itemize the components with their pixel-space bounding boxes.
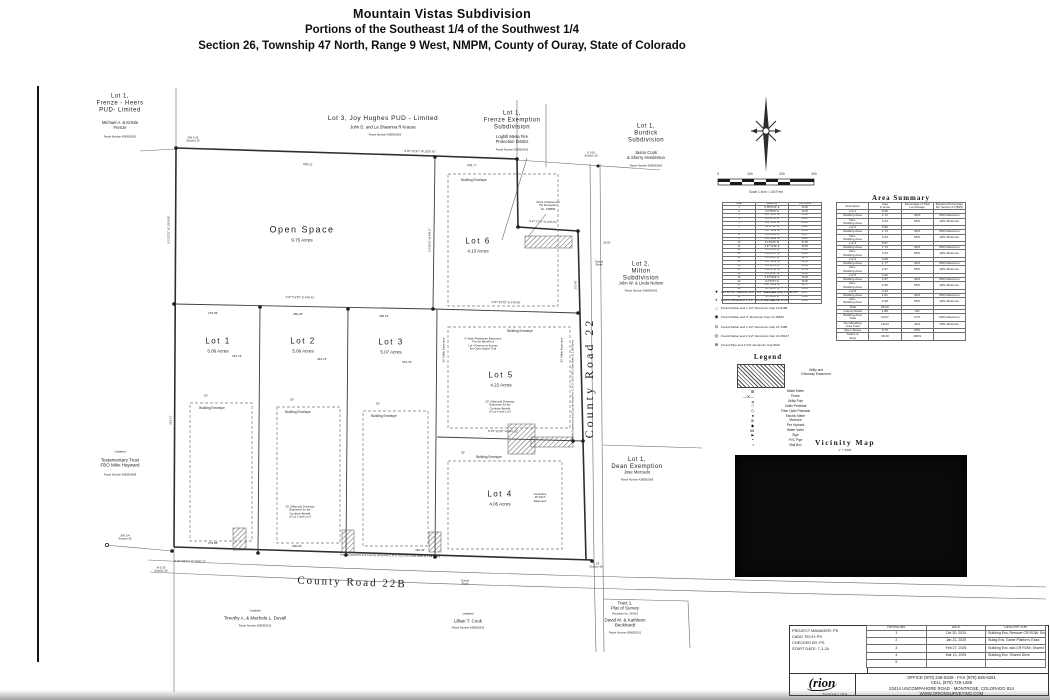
label-distance: 343.76' xyxy=(402,361,412,365)
table-row: Non- Building Area2.2856%40% Minimum xyxy=(837,298,966,305)
label-unplatted: Unplatted xyxy=(114,450,125,453)
table-cell: 3.34 xyxy=(869,234,901,241)
table-cell: 40% Minimum xyxy=(933,266,965,273)
label-lot-5-acres: 4.22 Acres xyxy=(490,382,511,387)
monument-text: Found Rebar and 1 1/2" Aluminum Cap LS 1… xyxy=(721,298,789,302)
table-cell: 60% Maximum xyxy=(933,314,965,321)
table-row: Non-Building Area Total18.6344%40% Minim… xyxy=(837,321,966,328)
legend-label: Fiber Optic Pedestal xyxy=(757,409,834,413)
label-milton: Lot 2, Milton Subdivision xyxy=(623,261,659,282)
table-cell: 44% xyxy=(901,321,933,328)
table-cell: Mar 10, 2025 xyxy=(926,652,986,659)
table-row: 3Feb 27, 2025Building Env. add CR ROW, S… xyxy=(867,645,1046,652)
label-frenze-exemption: Lot 1, Frenze Exemption Subdivision xyxy=(484,110,541,131)
area-summary-table: DescriptionArea in AcresPercentage of To… xyxy=(836,202,966,341)
legend-heading: Legend xyxy=(754,353,782,361)
vicinity-map-heading: Vicinity Map xyxy=(815,438,875,447)
label-driveway-easement: 25' Utility and Driveway Easement for th… xyxy=(286,505,315,518)
table-cell: Oct 30, 2024 xyxy=(926,630,986,637)
label-krause-owner: John D. and La Shawnna R Krause xyxy=(350,126,416,131)
table-cell: 2 xyxy=(867,638,927,645)
table-cell: 3.34 xyxy=(869,218,901,225)
monument-symbol-icon: ⊙ xyxy=(712,324,721,330)
table-cell xyxy=(933,333,965,340)
table-cell: 56% xyxy=(901,298,933,305)
easement-swatch-label: Utility and Driveway Easement xyxy=(788,368,844,376)
table-cell: Building Env. Shared Drive xyxy=(986,652,1046,659)
table-cell: 27% xyxy=(901,314,933,321)
monument-text: Found Rebar and 2 1/2" Aluminum Cap LS 3… xyxy=(721,334,789,338)
label-reception-number: Reception No. 240318 xyxy=(612,612,638,615)
label-parcel-number: Parcel Number 4288363001 xyxy=(104,135,136,138)
label-building-envelope: Building Envelope xyxy=(461,179,487,183)
label-grant-of-easement: Grant of Easement Per Reception No. 1588… xyxy=(536,201,559,211)
scan-shadow xyxy=(0,690,1050,700)
monument-text: Found Rebar and 1 1/2" Aluminum Cap LS 9… xyxy=(721,306,787,310)
table-cell: Building Env. add CR ROW, Shared Drive xyxy=(986,645,1046,652)
table-cell: 40% Minimum xyxy=(933,234,965,241)
table-cell: 40% Minimum xyxy=(933,298,965,305)
label-distance: 343.76' xyxy=(317,358,327,362)
monument-symbol-icon: ● xyxy=(712,289,721,294)
scale-bar xyxy=(718,179,814,185)
label-distance: 343.76' xyxy=(232,355,242,359)
label-loghill-mesa: Loghill Mesa Fire Protection District xyxy=(496,135,529,145)
monument-note: ○Found Rebar and 1 1/2" Aluminum Cap LS … xyxy=(712,306,838,311)
table-row: 5 xyxy=(867,660,1046,667)
table-cell: 66% xyxy=(901,234,933,241)
label-parcel-number: Parcel Number 4288362215 xyxy=(239,624,271,627)
easement-hatch-swatch xyxy=(737,364,785,388)
scale-caption: Scale 1 inch = 100 Feet xyxy=(749,190,783,194)
table-cell: 5 xyxy=(867,660,927,667)
label-lot-3: Lot 3 xyxy=(378,337,403,346)
label-section-corner: S 1/16 Section 26 xyxy=(584,152,597,159)
label-building-envelope: Building Envelope xyxy=(507,330,533,334)
label-frenze-heers: Lot 1, Frenze - Heers PUD- Limited xyxy=(96,93,143,114)
monument-symbol-icon: ◎ xyxy=(712,333,721,339)
label-open-space: Open Space xyxy=(269,225,334,236)
project-info: PROJECT MANAGER: PSCADD TECH: PSCHECKED … xyxy=(792,628,866,651)
legend-label: Electric Meter xyxy=(757,414,834,418)
table-cell: 1 xyxy=(867,630,927,637)
label-distance: 663.17' xyxy=(169,415,172,424)
label-testamentary-trust: Testamentary Trust FBO Mike Hayward xyxy=(100,458,139,469)
monument-symbol-icon: ◐ xyxy=(712,297,721,302)
mail-box-icon: ▪ xyxy=(722,442,757,447)
label-distance: 30.02' xyxy=(603,241,611,244)
label-bearing: N 87°18'41" W 2660.37' xyxy=(174,560,206,564)
label-cook-owner: Lillian T. Cook xyxy=(454,618,482,623)
table-row: Total Lot Area36.00100% xyxy=(837,333,966,340)
label-building-envelope: Building Envelope xyxy=(476,456,502,460)
monument-note: ◎Found Rebar and 2 1/2" Aluminum Cap LS … xyxy=(712,333,838,339)
label-frenze-owner: Michael A. & Kristie Frenze xyxy=(102,121,138,131)
label-distance: 280.20' xyxy=(292,545,302,549)
col-header: Percentage of Total Lot Acreage xyxy=(901,203,933,210)
table-cell: Building Env, Remove CR ROW, Shared Driv… xyxy=(986,630,1046,637)
monument-text: Set 18 No. 5 Rebar and 1 1/2" Aluminum C… xyxy=(721,290,797,294)
legend-label: Cable Pedestal xyxy=(757,404,834,408)
table-row: 1Oct 30, 2024Building Env, Remove CR ROW… xyxy=(867,630,1046,637)
label-county-road-22: County Road 22 xyxy=(582,318,596,439)
label-utility-easement: 20' Utility Easement xyxy=(560,338,563,363)
vicinity-map-scale: 1" = 3000' xyxy=(838,448,851,452)
label-section-corner: SW 1/4 Section 26 xyxy=(118,535,131,542)
table-cell: 2.35 xyxy=(869,282,901,289)
table-cell: Non- Building Area xyxy=(837,250,869,257)
label-distance: 273.45' xyxy=(574,280,577,289)
scale-tick: 300 xyxy=(811,172,817,176)
table-row: 2Jan 21, 2025Buldg Env, Game Platform, E… xyxy=(867,638,1046,645)
label-parcel-number: Parcel Number 4288363002 xyxy=(630,164,662,167)
table-cell: 4 xyxy=(867,652,927,659)
label-lot-1-acres: 5.06 Acres xyxy=(207,348,228,353)
label-pedestrian-easement: 6' Wide Pedestrian Easement For the Bene… xyxy=(465,337,502,350)
table-row: Non- Building Area3.3466%40% Minimum xyxy=(837,234,966,241)
table-cell: 2.27 xyxy=(869,266,901,273)
label-distance: 50' xyxy=(461,451,465,454)
monument-symbol-icon: ◉ xyxy=(712,314,721,320)
table-cell: Total Lot Area xyxy=(837,333,869,340)
table-cell: 36.00 xyxy=(869,333,901,340)
scale-bar-ticks: 0100200300 xyxy=(718,172,818,177)
table-cell: 56% xyxy=(901,266,933,273)
table-cell: 40% Minimum xyxy=(933,218,965,225)
table-cell: Non- Building Area xyxy=(837,298,869,305)
label-gravel-road: Gravel Road xyxy=(461,580,469,587)
label-bearing: S 87°11'33" E 940.45' xyxy=(286,296,315,300)
label-building-envelope: Building Envelope xyxy=(199,407,225,411)
label-beckhardt-owner: David M. & Kathleen Beckhardt xyxy=(604,618,645,629)
label-lot-2-acres: 5.06 Acres xyxy=(292,348,313,353)
scale-tick: 200 xyxy=(779,172,785,176)
label-parcel-number: Parcel Number 4288363003 xyxy=(369,133,401,136)
table-cell: Jan 21, 2025 xyxy=(926,638,986,645)
legend-label: Fire Hydrant xyxy=(757,423,834,427)
scale-tick: 0 xyxy=(717,172,719,176)
monument-text: Found Pipe and 3 1/4" Aluminum Cap BLM xyxy=(721,343,780,347)
col-header: Required Percentage Per Section 6-7(B)(2… xyxy=(933,203,965,210)
monument-symbol-icon: ○ xyxy=(712,306,721,311)
table-row: Non- Building Area2.2756%40% Minimum xyxy=(837,266,966,273)
area-summary-heading: Area Summary xyxy=(872,194,930,202)
label-ditch-easement: Centerline 25' Ditch Easement xyxy=(534,493,547,503)
building-envelopes xyxy=(190,174,570,549)
label-joy-hughes: Lot 3, Joy Hughes PUD - Limited xyxy=(328,115,438,123)
label-distance: 286.12' xyxy=(379,315,389,319)
label-driveway-easement: 25' Utility and Driveway Easement for th… xyxy=(486,400,515,413)
easement-hatching xyxy=(233,236,573,552)
label-distance: 50' xyxy=(204,394,208,397)
table-cell xyxy=(986,660,1046,667)
monument-symbol-icon: ⊛ xyxy=(712,342,721,348)
label-parcel-number: Parcel Number 4288362408 xyxy=(104,473,136,476)
label-section-corner: S 1/4 Section 26 xyxy=(589,563,602,570)
label-distance: 280.26' xyxy=(293,313,303,317)
label-utility-easement: 30' Utility Easement xyxy=(442,338,445,363)
label-distance: 836.11' xyxy=(303,163,313,167)
label-gravel-road: Gravel Road xyxy=(595,261,603,268)
vicinity-map-image xyxy=(735,455,967,577)
label-lot-2: Lot 2 xyxy=(290,336,315,345)
monument-note: ◉Found Rebar and 2" Aluminum Cap LS 1684… xyxy=(712,314,838,320)
table-cell: 3.34 xyxy=(869,250,901,257)
section-lines xyxy=(105,88,1046,692)
label-section-corner: SW 1/16 Section 26 xyxy=(186,137,199,144)
monument-text: Found Rebar and 2" Aluminum Cap LS 16840 xyxy=(721,315,784,319)
table-row: Non- Building Area3.3466%40% Minimum xyxy=(837,250,966,257)
table-cell: Non- Building Area xyxy=(837,282,869,289)
table-cell: 18.63 xyxy=(869,321,901,328)
col-header: Area in Acres xyxy=(869,203,901,210)
scale-tick: 100 xyxy=(747,172,753,176)
label-bearing: S 87°12'42" E 449.09' xyxy=(491,301,520,305)
label-lot-3-acres: 5.07 Acres xyxy=(380,349,401,354)
col-header: Description xyxy=(837,203,869,210)
table-cell: 10.67 xyxy=(869,314,901,321)
legend-label: Utility Pole xyxy=(757,399,834,403)
table-cell: Feb 27, 2025 xyxy=(926,645,986,652)
label-distance: 208.77' xyxy=(467,164,477,168)
legend-label: Water Meter xyxy=(757,389,834,393)
label-section-corner: W 1/16 Section 26 xyxy=(154,567,167,574)
label-parcel-number: Parcel Number 4288362101 xyxy=(609,631,641,634)
label-lot-1: Lot 1 xyxy=(205,336,230,345)
label-distance: 279.99' xyxy=(208,312,218,316)
monument-notes: ●Set 18 No. 5 Rebar and 1 1/2" Aluminum … xyxy=(712,289,838,352)
table-cell: 66% xyxy=(901,250,933,257)
monument-note: ⊛Found Pipe and 3 1/4" Aluminum Cap BLM xyxy=(712,342,838,348)
table-cell: Building Area Total xyxy=(837,314,869,321)
label-cook-henderson: Jason Cook & Sherry Henderson xyxy=(627,151,665,161)
label-distance: 279.58' xyxy=(208,542,218,546)
label-parcel-number: Parcel Number 4288363010 xyxy=(496,148,528,151)
label-burdick: Lot 1, Burdick Subdivision xyxy=(628,123,664,144)
table-cell: Non- Building Area xyxy=(837,218,869,225)
survey-monuments xyxy=(105,146,599,563)
monument-note: ◐Found Rebar and 1 1/2" Aluminum Cap LS … xyxy=(712,297,838,302)
table-row: Non- Building Area3.3466%40% Minimum xyxy=(837,218,966,225)
label-bearing: S 87°12'27" W 1105.42' xyxy=(404,150,435,154)
table-cell: Non- Building Area xyxy=(837,266,869,273)
label-distance: 50' xyxy=(376,402,380,405)
table-cell xyxy=(926,660,986,667)
table-cell: Buldg Env, Game Platform, Ease. xyxy=(986,638,1046,645)
table-cell: 40% Minimum xyxy=(933,282,965,289)
label-bearing: S 0°12'51" W 1324.99' xyxy=(167,216,170,244)
label-parcel-number: Parcel Number 4288364010 xyxy=(625,289,657,292)
label-mercado-owner: Jose Mercado xyxy=(624,471,650,476)
table-cell: 66% xyxy=(901,218,933,225)
label-lot-5: Lot 5 xyxy=(488,370,513,379)
label-lot-6: Lot 6 xyxy=(465,236,490,245)
table-row: Non- Building Area2.3556%40% Minimum xyxy=(837,282,966,289)
orion-logo-mark: (rion xyxy=(807,676,838,691)
label-unplatted: Unplatted xyxy=(462,612,473,615)
table-row: Building Area Total10.6727%60% Maximum xyxy=(837,314,966,321)
label-lot-4-acres: 4.05 Acres xyxy=(489,501,510,506)
label-distance: 50' xyxy=(290,398,294,401)
monument-note: ⊙Found Rebar and 1 1/2" Aluminum Cap LS … xyxy=(712,324,838,330)
table-cell: Non- Building Area xyxy=(837,234,869,241)
label-bearing: S 0°05'52" W 443.17' xyxy=(428,228,431,252)
label-parcel-number: Parcel Number 4288362206 xyxy=(452,626,484,629)
table-cell: 100% xyxy=(901,333,933,340)
label-duvall-owner: Timothy A. & Machele L. Duvall xyxy=(224,615,286,620)
label-tract-1: Tract 1, Plat of Survey xyxy=(611,601,639,612)
table-cell: Non-Building Area Total xyxy=(837,321,869,328)
table-cell: 3 xyxy=(867,645,927,652)
label-lot-4: Lot 4 xyxy=(487,489,512,498)
table-cell: 40% Minimum xyxy=(933,250,965,257)
label-nelson-owner: John W. & Linda Nelson xyxy=(619,282,664,287)
table-cell: 56% xyxy=(901,282,933,289)
label-bearing: N 87°12'40" W 447.52' xyxy=(488,430,518,434)
label-public-easement: Public Easement and County Road Per C.R.… xyxy=(571,340,574,440)
monument-note: ●Set 18 No. 5 Rebar and 1 1/2" Aluminum … xyxy=(712,289,838,294)
label-building-envelope: Building Envelope xyxy=(371,415,397,419)
table-row: 4Mar 10, 2025Building Env. Shared Drive xyxy=(867,652,1046,659)
north-arrow-icon xyxy=(751,96,781,172)
revisions-table: REVISIONSDATEDESCRIPTION1Oct 30, 2024Bui… xyxy=(866,625,1046,668)
label-building-envelope: Building Envelope xyxy=(285,411,311,415)
project-info-line: START DATE: 7-1-24 xyxy=(792,646,866,652)
monument-text: Found Rebar and 1 1/2" Aluminum Cap LS 7… xyxy=(721,325,787,329)
table-cell: 40% Minimum xyxy=(933,321,965,328)
label-unplatted: Unplatted xyxy=(249,609,260,612)
label-open-space-acres: 9.75 Acres xyxy=(291,237,312,242)
legend-label: Water Valve xyxy=(757,428,834,432)
legend-label: Manhole xyxy=(757,418,834,422)
legend-label: Fence xyxy=(757,394,834,398)
plat-linework xyxy=(0,0,1050,700)
label-lot-6-acres: 4.13 Acres xyxy=(467,248,488,253)
legend-label: Sign xyxy=(757,433,834,437)
label-distance: 440.42' xyxy=(415,549,425,553)
table-cell: 2.28 xyxy=(869,298,901,305)
plat-sheet: Mountain Vistas Subdivision Portions of … xyxy=(0,0,1050,700)
label-parcel-number: Parcel Number 4288362009 xyxy=(621,478,653,481)
